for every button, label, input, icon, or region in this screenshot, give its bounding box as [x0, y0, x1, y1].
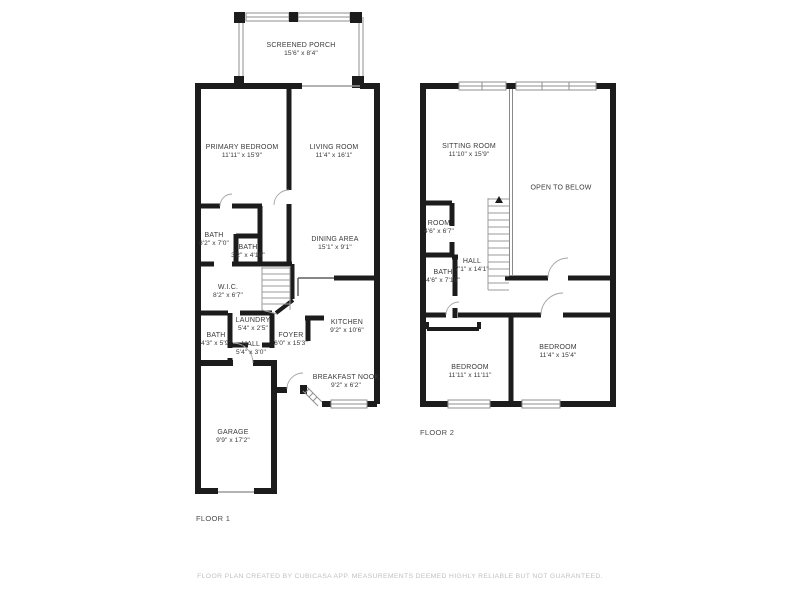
room-dims: 6'0" x 15'3": [274, 340, 308, 349]
room-label-living-room: LIVING ROOM 11'4" x 16'1": [310, 143, 359, 161]
room-name: FOYER: [274, 331, 308, 340]
room-dims: 9'2" x 10'6": [330, 327, 364, 336]
room-dims: 11'11" x 15'9": [206, 152, 279, 161]
room-name: GARAGE: [216, 428, 250, 437]
floorplan-linework: [0, 0, 800, 600]
room-dims: 11'4" x 15'4": [539, 352, 577, 361]
floor2-outer-walls: [420, 83, 616, 407]
room-dims: 4'3" x 5'9": [201, 340, 231, 349]
room-dims: 4'6" x 7'10": [426, 277, 460, 286]
room-label-hall-f2: HALL 7'1" x 14'1": [455, 257, 489, 275]
room-name: BATH: [231, 243, 265, 252]
room-name: OPEN TO BELOW: [530, 183, 591, 192]
room-dims: 5'4" x 3'0": [236, 349, 266, 358]
railing: [510, 89, 513, 275]
room-name: SITTING ROOM: [442, 142, 496, 151]
room-label-open-to-below: OPEN TO BELOW: [530, 183, 591, 192]
room-name: ROOM: [424, 219, 454, 228]
room-name: DINING AREA: [311, 235, 358, 244]
room-label-laundry: LAUNDRY 5'4" x 2'5": [236, 316, 271, 334]
room-label-bedroom-right: BEDROOM 11'4" x 15'4": [539, 343, 577, 361]
room-dims: 8'2" x 7'0": [199, 240, 229, 249]
room-label-wic: W.I.C. 8'2" x 6'7": [213, 283, 243, 301]
room-name: HALL: [455, 257, 489, 266]
floor2-plan: [420, 82, 616, 408]
room-label-bath-3: BATH 4'3" x 5'9": [201, 331, 231, 349]
room-name: W.I.C.: [213, 283, 243, 292]
room-label-room-f2: ROOM 4'6" x 6'7": [424, 219, 454, 237]
floor2-label: FLOOR 2: [420, 428, 454, 437]
room-name: PRIMARY BEDROOM: [206, 143, 279, 152]
room-name: BEDROOM: [448, 363, 491, 372]
room-label-bath-2: BATH 3'2" x 4'10": [231, 243, 265, 261]
room-label-screened-porch: SCREENED PORCH 15'6" x 8'4": [267, 41, 336, 59]
room-label-foyer: FOYER 6'0" x 15'3": [274, 331, 308, 349]
disclaimer-text: FLOOR PLAN CREATED BY CUBICASA APP. MEAS…: [0, 573, 800, 580]
room-label-bedroom-left: BEDROOM 11'11" x 11'11": [448, 363, 491, 381]
room-label-bath-1: BATH 8'2" x 7'0": [199, 231, 229, 249]
room-dims: 15'1" x 9'1": [311, 244, 358, 253]
room-label-bath-f2: BATH 4'6" x 7'10": [426, 268, 460, 286]
room-name: HALL: [236, 340, 266, 349]
room-label-primary-bedroom: PRIMARY BEDROOM 11'11" x 15'9": [206, 143, 279, 161]
room-name: LAUNDRY: [236, 316, 271, 325]
room-name: SCREENED PORCH: [267, 41, 336, 50]
room-name: BATH: [201, 331, 231, 340]
room-dims: 4'6" x 6'7": [424, 228, 454, 237]
room-name: KITCHEN: [330, 318, 364, 327]
room-dims: 9'9" x 17'2": [216, 437, 250, 446]
room-dims: 5'4" x 2'5": [236, 325, 271, 334]
room-dims: 11'10" x 15'9": [442, 151, 496, 160]
room-label-garage: GARAGE 9'9" x 17'2": [216, 428, 250, 446]
room-label-hall-f1: HALL 5'4" x 3'0": [236, 340, 266, 358]
room-label-kitchen: KITCHEN 9'2" x 10'6": [330, 318, 364, 336]
room-name: BEDROOM: [539, 343, 577, 352]
floorplan-page: SCREENED PORCH 15'6" x 8'4" PRIMARY BEDR…: [0, 0, 800, 600]
room-name: BATH: [426, 268, 460, 277]
room-dims: 3'2" x 4'10": [231, 252, 265, 261]
floor2-stairs: [488, 196, 509, 290]
room-name: BREAKFAST NOOK: [313, 373, 379, 382]
room-dims: 7'1" x 14'1": [455, 266, 489, 275]
room-label-dining-area: DINING AREA 15'1" x 9'1": [311, 235, 358, 253]
room-dims: 15'6" x 8'4": [267, 50, 336, 59]
room-dims: 9'2" x 6'2": [313, 382, 379, 391]
room-label-sitting-room: SITTING ROOM 11'10" x 15'9": [442, 142, 496, 160]
floor2-closet-wall: [427, 322, 479, 329]
kitchen-counter: [298, 278, 334, 296]
room-dims: 11'4" x 16'1": [310, 152, 359, 161]
floor1-label: FLOOR 1: [196, 514, 230, 523]
room-name: BATH: [199, 231, 229, 240]
room-name: LIVING ROOM: [310, 143, 359, 152]
room-dims: 8'2" x 6'7": [213, 292, 243, 301]
room-label-breakfast-nook: BREAKFAST NOOK 9'2" x 6'2": [313, 373, 379, 391]
room-dims: 11'11" x 11'11": [448, 372, 491, 381]
